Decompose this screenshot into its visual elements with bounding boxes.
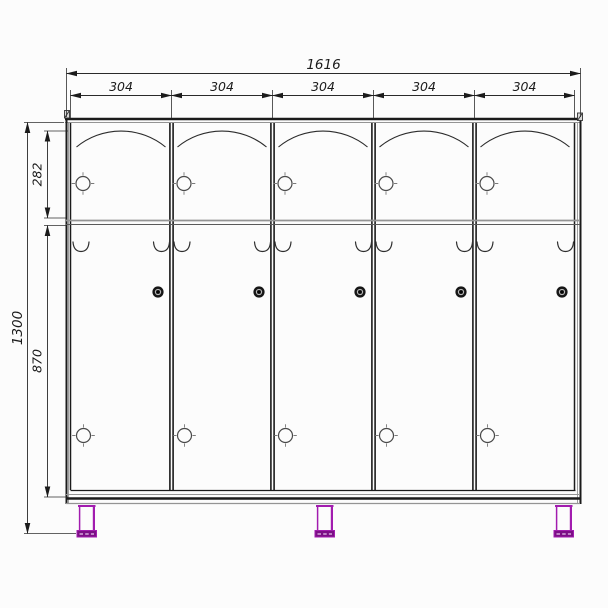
dimension-label-door-width-1: 304: [109, 79, 133, 94]
dimension-label-lower-door-height: 870: [30, 349, 45, 373]
locker-technical-drawing: 1616 304 304 304 304 304 1300: [0, 0, 608, 608]
corner-weld-mark: [578, 113, 583, 121]
dimension-label-door-width-3: 304: [311, 79, 335, 94]
dimension-label-upper-door-height: 282: [30, 163, 45, 187]
corner-weld-mark: [65, 111, 70, 119]
dimension-label-door-width-5: 304: [513, 79, 537, 94]
dimension-label-door-width-2: 304: [210, 79, 234, 94]
dimension-label-total-width: 1616: [306, 57, 340, 73]
dimension-label-door-width-4: 304: [412, 79, 436, 94]
dimension-label-total-height: 1300: [10, 311, 26, 345]
cabinet-left-side: [67, 118, 71, 504]
